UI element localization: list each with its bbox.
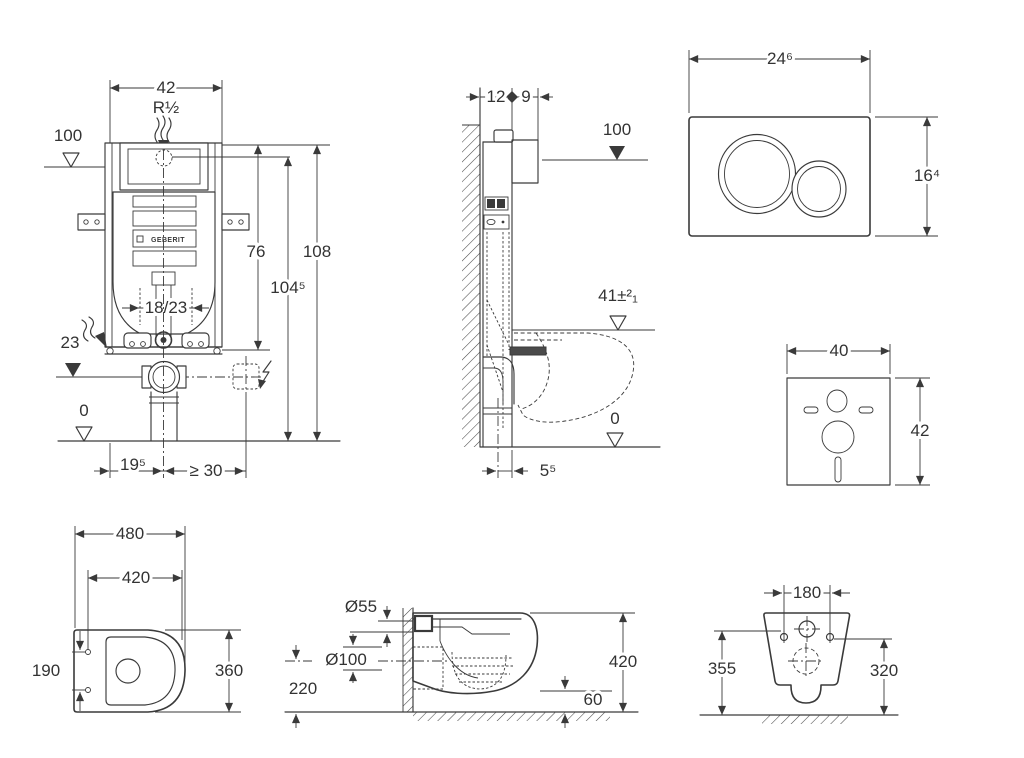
fixing-point-arrow bbox=[82, 317, 107, 348]
dim-label-flush-dia: Ø55 bbox=[345, 597, 377, 616]
brand-logo-text: GEBERIT bbox=[151, 237, 185, 244]
flush-unit-housing bbox=[120, 143, 290, 190]
dim-label-18-23: 18/23 bbox=[145, 298, 188, 317]
dim-label-220: 220 bbox=[289, 679, 317, 698]
view-wc-top: 480 420 360 190 bbox=[32, 524, 243, 712]
dim-label-19-5: 19⁵ bbox=[120, 455, 146, 474]
level-triangle-filled bbox=[609, 146, 625, 160]
dim-label-pad-width: 40 bbox=[830, 341, 849, 360]
view-frame-side: 12 9 100 41±²₁ bbox=[462, 87, 660, 480]
dim-label-355: 355 bbox=[708, 659, 736, 678]
dim-label-9: 9 bbox=[521, 87, 530, 106]
floor-hatching bbox=[762, 715, 848, 724]
dim-label-plate-height: 16⁴ bbox=[914, 166, 940, 185]
level-triangle-open bbox=[607, 433, 623, 447]
dim-label-420h: 420 bbox=[609, 652, 637, 671]
level-triangle-filled bbox=[65, 363, 81, 377]
dim-label-190: 190 bbox=[32, 661, 60, 680]
cistern-tank: GEBERIT bbox=[113, 192, 215, 340]
level-label-100: 100 bbox=[54, 126, 82, 145]
wall-hatching bbox=[462, 125, 480, 447]
wall-bracket-left bbox=[78, 214, 105, 230]
level-label-23: 23 bbox=[61, 333, 80, 352]
view-wc-rear: 180 355 320 bbox=[700, 583, 898, 724]
level-triangle-open bbox=[76, 427, 92, 441]
dim-label-360: 360 bbox=[215, 661, 243, 680]
electrical-connection bbox=[233, 356, 271, 397]
drain-elbow bbox=[483, 357, 514, 414]
wc-rim-outline bbox=[74, 630, 185, 712]
dim-label-drain-dia: Ø100 bbox=[325, 650, 367, 669]
dim-label-pad-height: 42 bbox=[911, 421, 930, 440]
floor-hatching bbox=[413, 712, 610, 721]
dim-diamond bbox=[506, 91, 518, 103]
level-label-0: 0 bbox=[610, 409, 619, 428]
dim-label-320: 320 bbox=[870, 661, 898, 680]
dim-label-12: 12 bbox=[487, 87, 506, 106]
drawing-sheet: 42 R½ 100 bbox=[0, 0, 1024, 758]
view-wc-side: Ø55 Ø100 220 420 60 bbox=[285, 597, 638, 728]
flush-button-small[interactable] bbox=[792, 161, 846, 217]
level-triangle-open bbox=[63, 153, 79, 167]
dim-label-104-5: 104⁵ bbox=[270, 278, 305, 297]
filling-valve-cap bbox=[494, 130, 513, 142]
dim-label-plate-width: 24⁶ bbox=[767, 49, 793, 68]
wall-hatching bbox=[403, 608, 413, 712]
dim-label-60: 60 bbox=[584, 690, 603, 709]
dim-label-420: 420 bbox=[122, 568, 150, 587]
technical-drawing: 42 R½ 100 bbox=[0, 0, 1024, 758]
dim-label-76: 76 bbox=[247, 242, 266, 261]
flush-bend-connector bbox=[510, 347, 546, 355]
level-triangle-open bbox=[610, 316, 626, 330]
flush-duct-box bbox=[512, 140, 538, 183]
level-label-0: 0 bbox=[79, 401, 88, 420]
frame-profile bbox=[483, 130, 538, 447]
dim-label-thread: R½ bbox=[153, 98, 179, 117]
lightning-icon bbox=[262, 361, 271, 383]
dim-label-30: ≥ 30 bbox=[190, 461, 223, 480]
dim-label-108: 108 bbox=[303, 242, 331, 261]
view-frame-front: 42 R½ 100 bbox=[44, 78, 340, 480]
drain-outlet bbox=[142, 362, 186, 442]
flush-connector bbox=[415, 616, 432, 631]
dim-label-180: 180 bbox=[793, 583, 821, 602]
sound-pad-body bbox=[787, 378, 890, 485]
level-label-41: 41±²₁ bbox=[598, 286, 638, 305]
level-label-100: 100 bbox=[603, 120, 631, 139]
dim-label-480: 480 bbox=[116, 524, 144, 543]
wc-rear-outline bbox=[764, 613, 850, 703]
view-sound-pad: 40 42 bbox=[787, 341, 930, 485]
view-flush-plate: 24⁶ 16⁴ bbox=[689, 49, 940, 236]
wall-bracket-right bbox=[222, 214, 249, 230]
dim-label-42: 42 bbox=[157, 78, 176, 97]
dim-label-5-5: 5⁵ bbox=[540, 461, 557, 480]
